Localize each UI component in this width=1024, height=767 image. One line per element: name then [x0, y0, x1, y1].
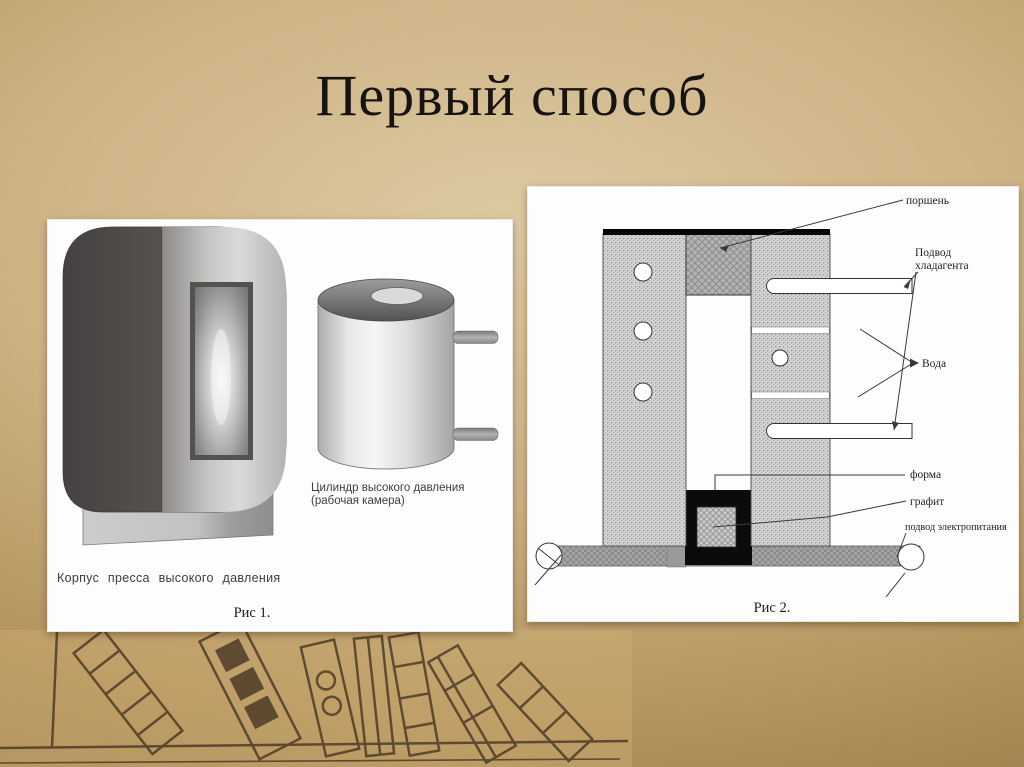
label-power: подвод электропитания	[905, 522, 1007, 533]
coolant-tube-top	[767, 279, 913, 294]
cylinder-body	[318, 300, 454, 469]
label-graphite: графит	[910, 496, 944, 508]
label-coolant-line2: хладагента	[915, 260, 969, 272]
coolant-tube-bottom	[767, 424, 913, 439]
slide: { "slide": { "title": "Первый способ" },…	[0, 0, 1024, 767]
press-body-label: Корпус пресса высокого давления	[57, 571, 280, 585]
hole	[772, 350, 788, 366]
water-slot-top	[752, 327, 830, 334]
hole	[634, 263, 652, 281]
water-slot-bottom	[752, 392, 830, 399]
figure1-panel: Цилиндр высокого давления (рабочая камер…	[47, 219, 513, 632]
cylinder-label-line1: Цилиндр высокого давления	[311, 482, 465, 495]
cylinder-bore	[371, 288, 423, 305]
label-coolant-line1: Подвод	[915, 247, 951, 259]
label-mold: форма	[910, 469, 941, 481]
power-terminal-right	[898, 544, 924, 570]
cylinder-label: Цилиндр высокого давления (рабочая камер…	[311, 482, 465, 508]
hole	[634, 322, 652, 340]
cylinder-pin-top	[453, 331, 498, 344]
cylinder-pin-bottom	[453, 428, 498, 441]
books-sketch	[0, 630, 632, 767]
figure2-panel: поршень Подвод хладагента Вода форма гра…	[527, 186, 1019, 622]
figure2-caption: Рис 2.	[717, 600, 827, 617]
top-plate	[603, 229, 830, 235]
power-terminal-left	[536, 543, 562, 569]
page-title: Первый способ	[0, 62, 1024, 129]
figure1-caption: Рис 1.	[197, 605, 307, 622]
label-water: Вода	[922, 358, 946, 370]
piston	[686, 234, 751, 295]
cylinder-label-line2: (рабочая камера)	[311, 495, 465, 508]
label-piston: поршень	[906, 195, 949, 207]
figure2-diagram: поршень Подвод хладагента Вода форма гра…	[527, 186, 1019, 622]
hole	[634, 383, 652, 401]
